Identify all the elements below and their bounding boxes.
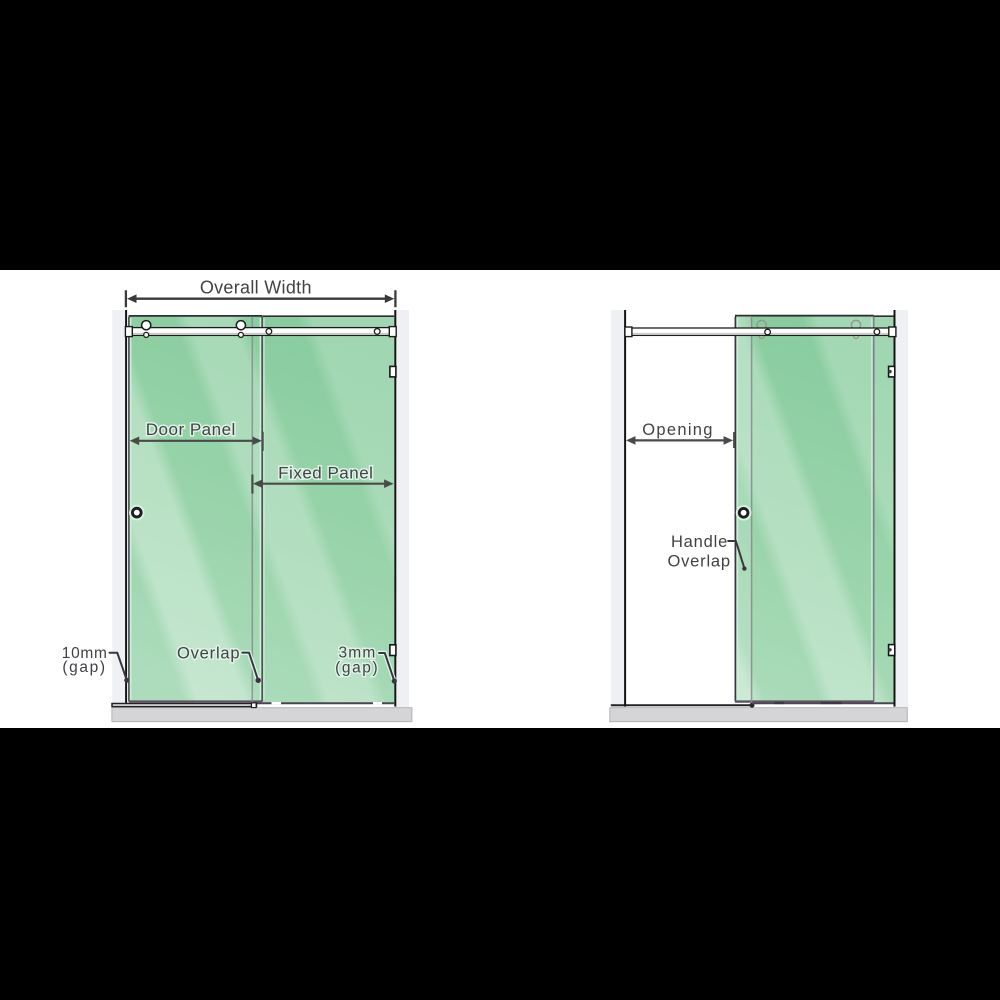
svg-text:Door Panel: Door Panel — [146, 420, 236, 439]
svg-text:Overlap: Overlap — [177, 645, 240, 663]
svg-text:(gap): (gap) — [335, 659, 379, 676]
svg-text:Overlap: Overlap — [668, 552, 731, 570]
svg-text:Handle: Handle — [671, 533, 728, 551]
svg-text:Overall Width: Overall Width — [200, 278, 312, 298]
svg-text:Opening: Opening — [642, 421, 713, 439]
svg-text:(gap): (gap) — [62, 659, 106, 676]
svg-text:Fixed Panel: Fixed Panel — [278, 463, 373, 482]
